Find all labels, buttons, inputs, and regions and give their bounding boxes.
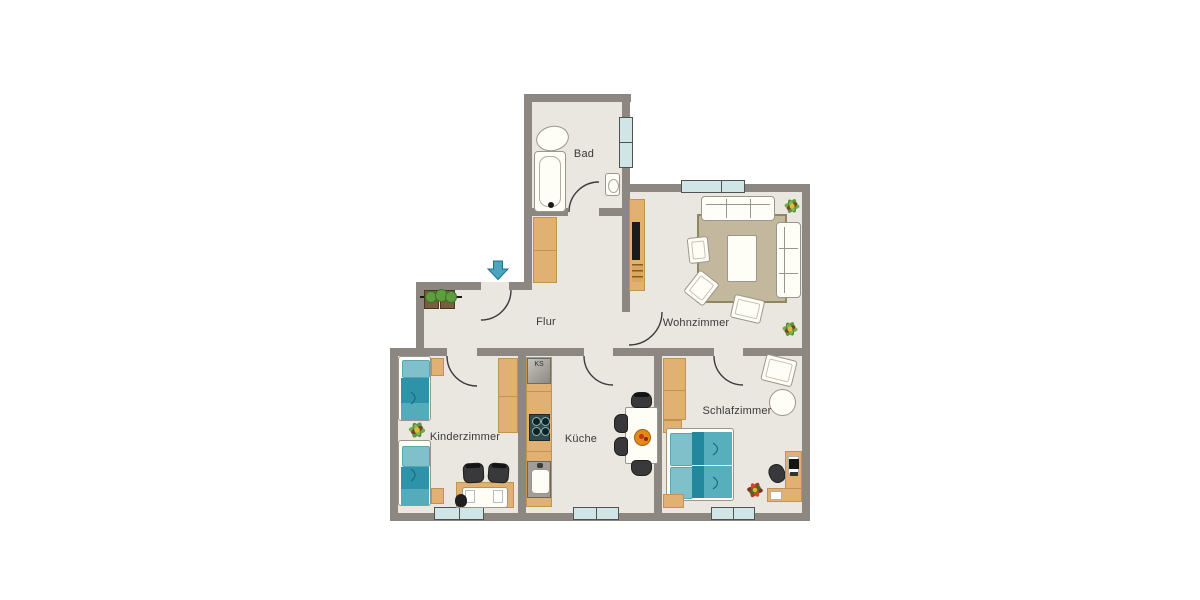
armchair-left [687,236,711,264]
hallway-label: Flur [536,316,556,328]
fridge-label: KS [534,361,543,368]
dining-chair-left-1 [614,414,628,433]
desk-computer [789,459,799,469]
double-bed [666,428,734,501]
sofa-top [701,196,775,221]
desk-papers [770,491,782,500]
stove [529,414,550,441]
fridge: KS [527,358,551,384]
fruit-bowl [634,429,651,446]
entrance-arrow-icon [488,261,508,280]
kids-bed-2 [398,440,431,506]
bathroom-label: Bad [574,148,594,160]
bedroom-window [711,507,755,520]
desk-keyboard [790,472,798,476]
livingroom-window [681,180,745,193]
floor-plan: KS [0,0,1200,600]
bedroom-nightstand-2 [663,494,684,508]
kitchen-door-threshold [584,348,613,356]
bathroom-door-threshold [568,208,599,216]
kids-wardrobe [498,358,518,433]
kitchen-window [573,507,619,520]
hall-wardrobe [533,217,557,283]
kitchen-label: Küche [565,433,597,445]
kids-nightstand-2 [431,488,444,504]
wall-bath-bottom-right [599,208,630,216]
kids-desk-chair-2 [487,462,509,483]
wall-bath-top [524,94,631,102]
sink-faucet [537,463,543,468]
wall-hall-left [416,282,424,348]
livingroom-door-threshold [622,312,630,348]
bedroom-round-table [769,389,796,416]
wall-mid-1 [390,348,447,356]
dining-chair-bottom [631,460,652,476]
wall-bath-left [524,94,532,290]
bedroom-wardrobe [663,358,686,420]
kids-bed-1 [398,356,431,421]
sofa-right [776,222,801,298]
wall-hall-top-left [416,282,481,290]
kids-desk-chair-1 [462,462,484,483]
toilet [605,173,620,196]
tv-cabinet [629,199,645,291]
wall-outer-left [390,348,398,521]
bathroom-window [619,117,633,168]
bedroom-label: Schlafzimmer [702,405,771,417]
kitchen-sink [527,461,551,498]
coffee-table [727,235,757,282]
entrance-threshold [481,282,509,290]
dining-chair-left-2 [614,437,628,456]
dining-chair-top [631,392,652,408]
livingroom-label: Wohnzimmer [663,317,730,329]
desk-lamp [455,494,467,507]
wall-hall-top-right [509,282,532,290]
tv-screen [632,222,640,260]
kidsroom-window [434,507,484,520]
wall-kids-kitchen [518,356,526,513]
kidsroom-door-threshold [447,348,477,356]
plant-icon [445,291,457,303]
wall-mid-4 [743,348,810,356]
kids-nightstand-1 [431,358,444,376]
wall-mid-3 [613,348,714,356]
wall-mid-2 [477,348,584,356]
tv-drawers [632,264,643,282]
bedroom-door-threshold [714,348,743,356]
bathtub [534,151,566,212]
kidsroom-label: Kinderzimmer [430,431,500,443]
bathtub-faucet [548,202,554,208]
